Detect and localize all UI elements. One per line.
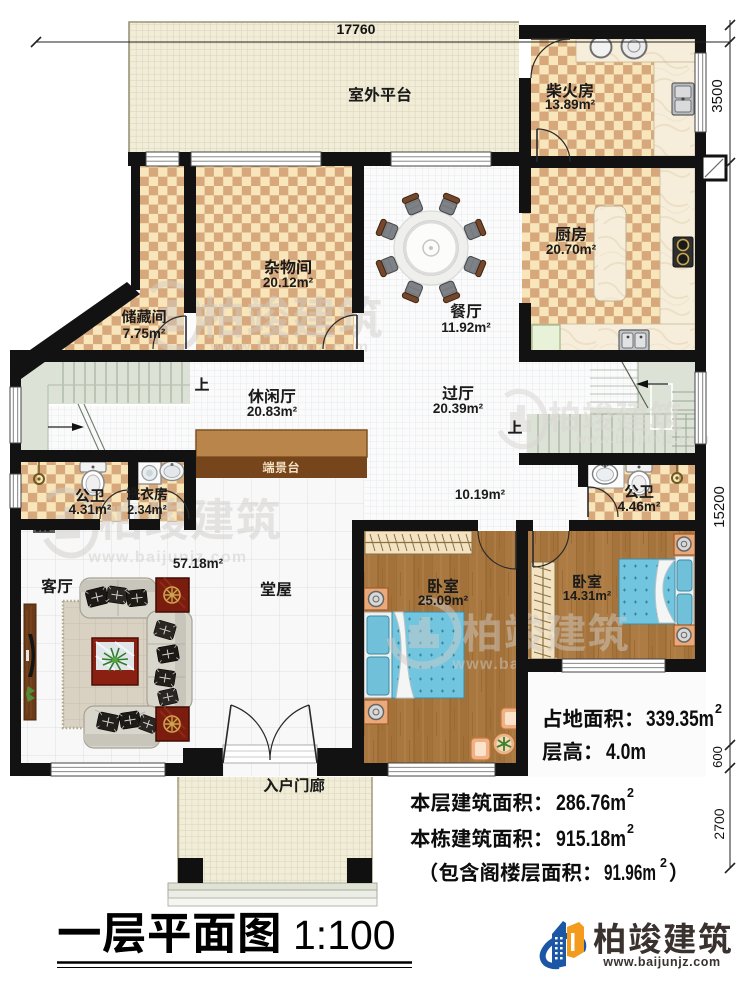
svg-text:25.09m²: 25.09m²	[418, 593, 469, 608]
svg-text:286.76m: 286.76m	[556, 790, 626, 815]
svg-text:20.70m²: 20.70m²	[546, 242, 597, 257]
svg-text:17760: 17760	[337, 21, 376, 37]
svg-text:4.0m: 4.0m	[606, 739, 646, 764]
svg-text:2: 2	[627, 786, 634, 800]
svg-text:57.18m²: 57.18m²	[173, 556, 224, 571]
svg-text:www.baijunjz.com: www.baijunjz.com	[88, 549, 248, 566]
svg-text:20.12m²: 20.12m²	[263, 275, 314, 290]
svg-text:20.39m²: 20.39m²	[433, 401, 484, 416]
svg-text:3500: 3500	[709, 79, 726, 112]
svg-text:www.baijunjz.com: www.baijunjz.com	[575, 431, 710, 446]
svg-text:2.34m²: 2.34m²	[127, 503, 167, 517]
svg-text:339.35m: 339.35m	[646, 706, 714, 731]
svg-text:13.89m²: 13.89m²	[545, 97, 596, 112]
svg-text:600: 600	[710, 746, 725, 768]
svg-text:www.baijunjz.com: www.baijunjz.com	[602, 955, 720, 969]
svg-text:14.31m²: 14.31m²	[563, 588, 612, 603]
svg-text:915.18m: 915.18m	[556, 826, 626, 851]
svg-text:11.92m²: 11.92m²	[441, 320, 491, 335]
svg-text:2700: 2700	[711, 808, 727, 839]
svg-text:2: 2	[627, 822, 634, 836]
svg-text:15200: 15200	[711, 486, 728, 528]
svg-text:2: 2	[660, 856, 667, 870]
svg-text:20.83m²: 20.83m²	[247, 404, 298, 419]
svg-text:4.46m²: 4.46m²	[618, 499, 661, 514]
svg-text:91.96m: 91.96m	[604, 860, 656, 885]
svg-text:7.75m²: 7.75m²	[123, 326, 166, 341]
svg-text:2: 2	[715, 702, 722, 716]
svg-text:10.19m²: 10.19m²	[455, 487, 506, 502]
svg-text:1:100: 1:100	[293, 912, 396, 958]
svg-text:4.31m²: 4.31m²	[69, 502, 112, 517]
